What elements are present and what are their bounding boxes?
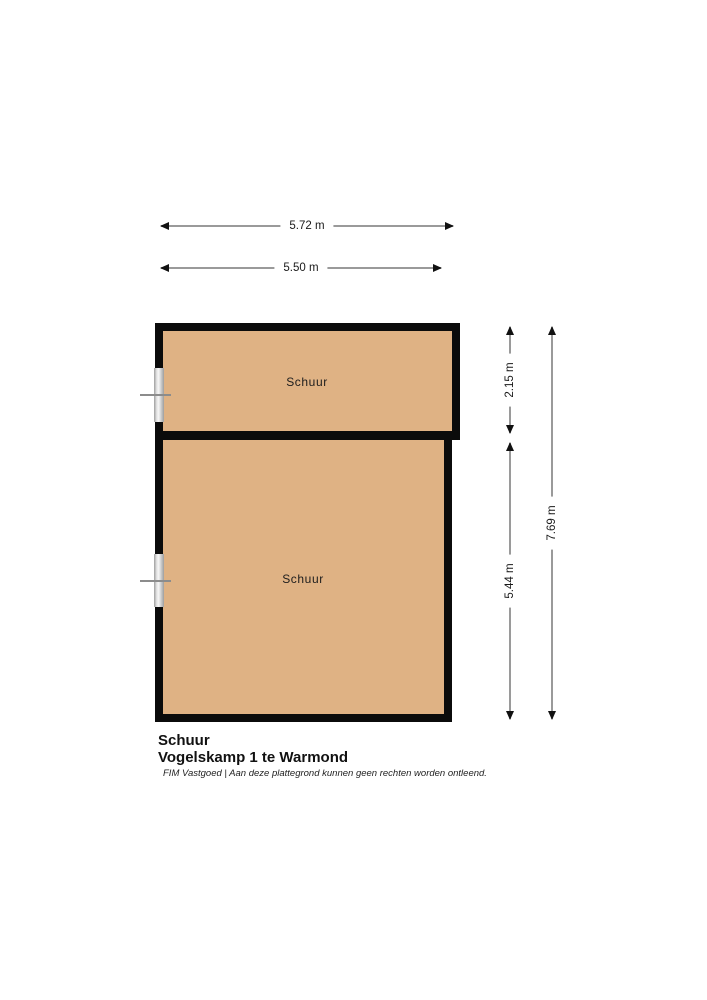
arrowhead-up-icon xyxy=(506,326,514,335)
dimension-width-total: 5.72 m xyxy=(160,219,454,233)
wall-bottom xyxy=(155,714,452,722)
plan-title: Schuur xyxy=(158,732,210,749)
dimension-label: 5.44 m xyxy=(504,554,516,607)
room-label-bottom: Schuur xyxy=(282,572,324,586)
window-tick-bottom-room xyxy=(140,580,171,582)
arrowhead-right-icon xyxy=(445,222,454,230)
arrowhead-up-icon xyxy=(548,326,556,335)
wall-right-upper xyxy=(452,323,460,440)
floorplan-canvas: 5.72 m 5.50 m Schuur Schuur 2.15 m 5.44 … xyxy=(0,0,707,1000)
wall-top xyxy=(155,323,460,331)
room-label-top: Schuur xyxy=(286,375,328,389)
wall-right-lower xyxy=(444,440,452,722)
dimension-height-lower-room: 5.44 m xyxy=(503,442,517,720)
dimension-label: 7.69 m xyxy=(546,496,558,549)
arrowhead-down-icon xyxy=(506,711,514,720)
dimension-width-lower-room: 5.50 m xyxy=(160,261,442,275)
wall-divider xyxy=(155,431,460,440)
dimension-height-total: 7.69 m xyxy=(545,326,559,720)
window-tick-top-room xyxy=(140,394,171,396)
arrowhead-down-icon xyxy=(506,425,514,434)
dimension-label: 2.15 m xyxy=(504,353,516,406)
plan-address: Vogelskamp 1 te Warmond xyxy=(158,749,348,766)
dimension-height-upper-room: 2.15 m xyxy=(503,326,517,434)
arrowhead-down-icon xyxy=(548,711,556,720)
arrowhead-up-icon xyxy=(506,442,514,451)
dimension-label: 5.72 m xyxy=(280,220,333,232)
dimension-label: 5.50 m xyxy=(274,262,327,274)
arrowhead-left-icon xyxy=(160,222,169,230)
arrowhead-right-icon xyxy=(433,264,442,272)
arrowhead-left-icon xyxy=(160,264,169,272)
plan-disclaimer: FIM Vastgoed | Aan deze plattegrond kunn… xyxy=(163,768,487,779)
